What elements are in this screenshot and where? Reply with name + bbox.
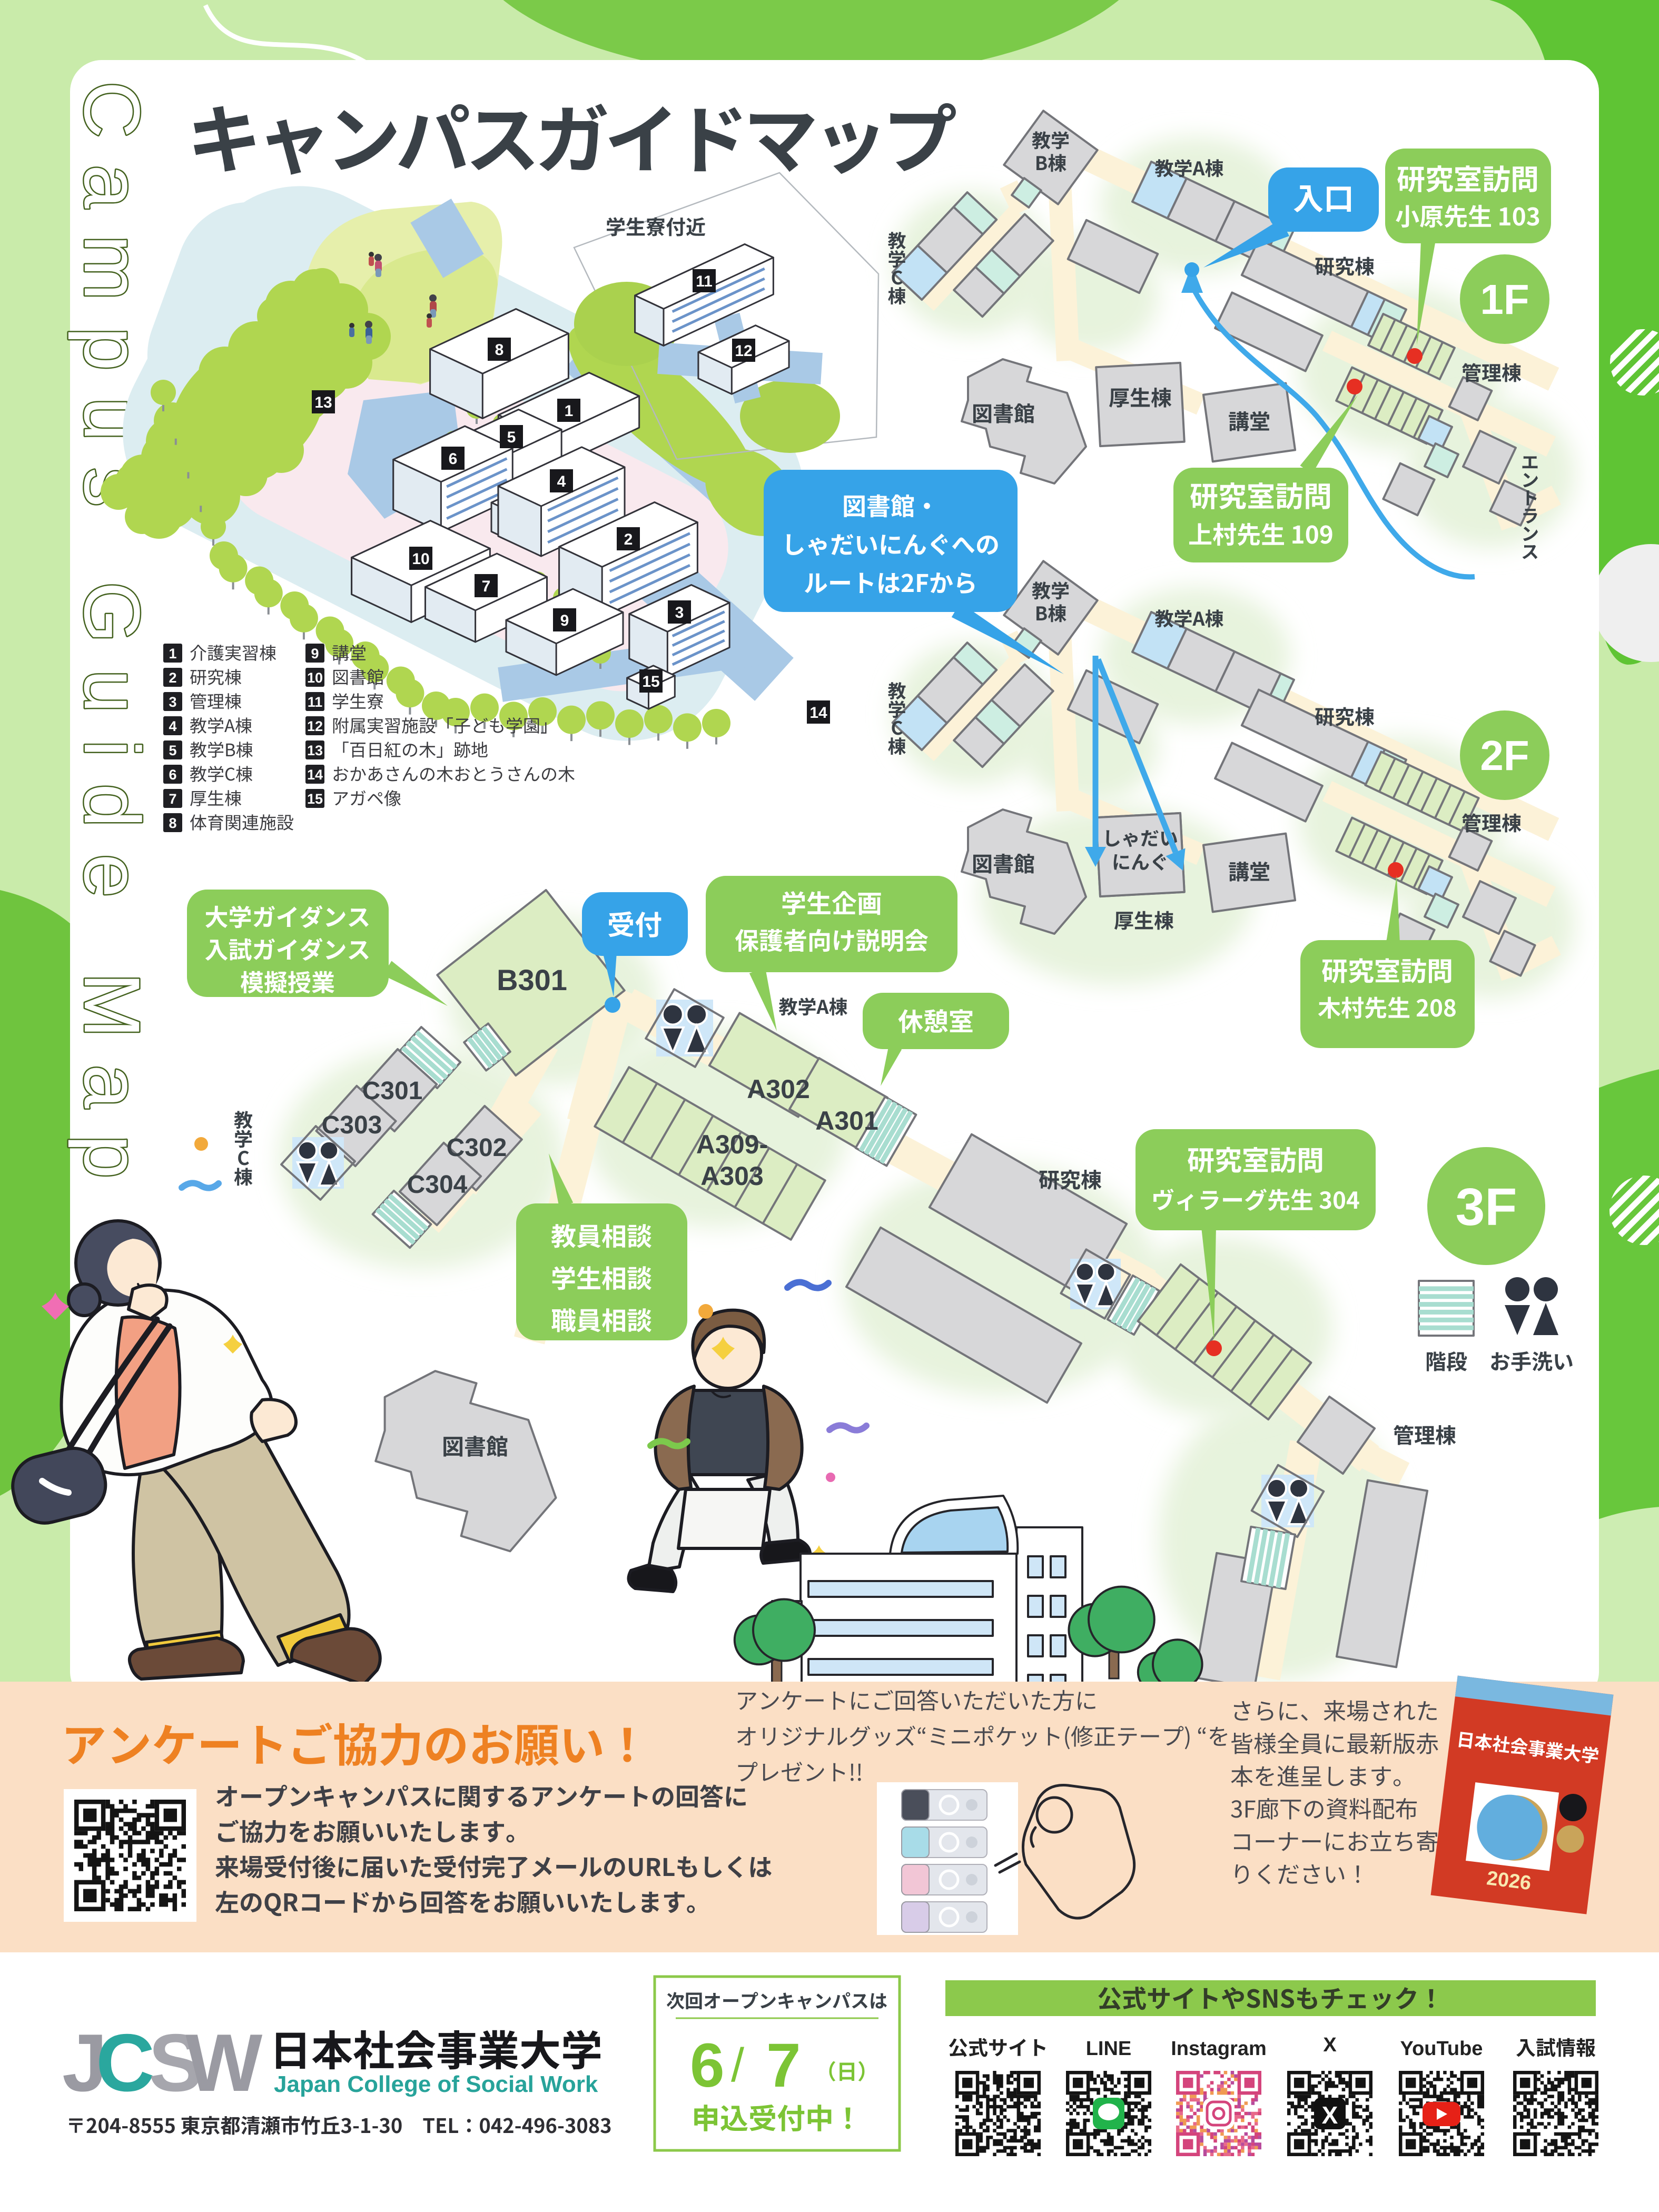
svg-text:A301: A301 <box>815 1106 878 1135</box>
svg-text:A309-: A309- <box>696 1130 768 1159</box>
svg-text:10: 10 <box>412 550 429 568</box>
svg-text:/: / <box>731 2039 744 2092</box>
svg-text:C301: C301 <box>362 1077 423 1105</box>
svg-text:6: 6 <box>169 767 176 783</box>
svg-text:8: 8 <box>495 341 504 359</box>
svg-text:12: 12 <box>735 342 752 360</box>
svg-text:5: 5 <box>169 743 176 758</box>
svg-text:14: 14 <box>307 767 323 783</box>
svg-text:Japan College of Social Work: Japan College of Social Work <box>274 2071 598 2097</box>
svg-text:11: 11 <box>696 273 713 290</box>
svg-text:3F: 3F <box>1456 1178 1517 1237</box>
svg-text:A303: A303 <box>700 1161 764 1191</box>
svg-text:A302: A302 <box>747 1074 810 1104</box>
svg-text:C304: C304 <box>407 1171 468 1199</box>
svg-text:Campus Guide Map: Campus Guide Map <box>68 81 156 1205</box>
svg-text:13: 13 <box>307 743 323 758</box>
svg-text:C302: C302 <box>447 1134 507 1162</box>
svg-text:1: 1 <box>169 646 176 661</box>
svg-text:C303: C303 <box>322 1111 382 1139</box>
svg-text:W: W <box>185 2017 263 2108</box>
svg-text:X: X <box>1323 2034 1337 2056</box>
svg-text:3: 3 <box>169 694 176 710</box>
svg-text:Instagram: Instagram <box>1171 2038 1267 2060</box>
svg-text:LINE: LINE <box>1086 2038 1132 2060</box>
svg-text:6: 6 <box>690 2031 725 2100</box>
svg-text:15: 15 <box>642 673 659 690</box>
svg-text:15: 15 <box>307 791 323 807</box>
svg-text:10: 10 <box>307 670 323 686</box>
svg-text:1: 1 <box>565 402 574 420</box>
svg-text:7: 7 <box>766 2031 801 2100</box>
svg-text:7: 7 <box>169 791 176 807</box>
svg-text:9: 9 <box>560 612 569 629</box>
svg-text:2F: 2F <box>1480 732 1529 779</box>
svg-text:C: C <box>96 2017 155 2108</box>
svg-text:2: 2 <box>624 531 633 548</box>
svg-text:5: 5 <box>507 429 516 446</box>
svg-text:2: 2 <box>169 670 176 686</box>
svg-text:X: X <box>1322 2101 1338 2129</box>
svg-text:11: 11 <box>308 694 323 710</box>
svg-text:4: 4 <box>557 473 566 490</box>
svg-text:9: 9 <box>311 646 319 661</box>
svg-text:1F: 1F <box>1480 276 1529 323</box>
svg-text:7: 7 <box>482 578 491 595</box>
svg-text:14: 14 <box>809 704 827 722</box>
svg-text:YouTube: YouTube <box>1400 2038 1483 2060</box>
svg-text:8: 8 <box>169 815 176 831</box>
svg-text:13: 13 <box>314 394 332 411</box>
svg-text:3: 3 <box>675 604 684 621</box>
svg-text:B301: B301 <box>497 963 567 996</box>
svg-text:4: 4 <box>169 718 176 734</box>
svg-text:12: 12 <box>307 718 323 734</box>
svg-text:6: 6 <box>449 450 458 468</box>
